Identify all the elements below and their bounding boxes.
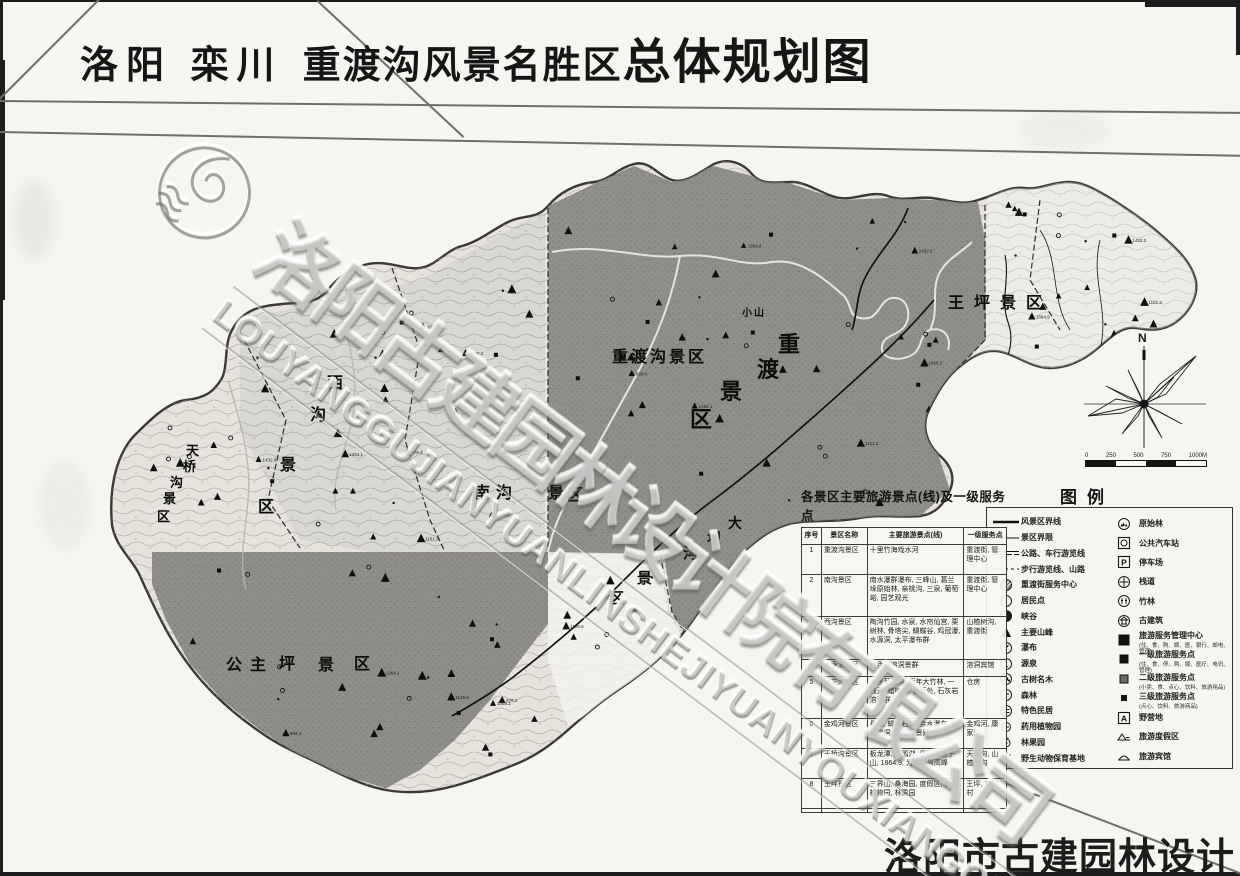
map-label-13: 区 xyxy=(258,498,274,516)
spot-height-label: 1264.1 xyxy=(386,671,400,676)
map-symbol xyxy=(427,676,429,678)
spot-height-label: 976.4 xyxy=(411,450,423,455)
poi-cell: 重渡街, 管理中心 xyxy=(964,544,1007,574)
poi-table-row: 3西沟景区陶沟竹园, 水泉, 水帘仙宫, 栗树林, 骨塔尖, 蝴蝶谷, 鸡冠瀑,… xyxy=(802,617,1007,660)
legend-label: 旅游度假区 xyxy=(1139,731,1179,742)
poi-cell: 王坪景区 xyxy=(821,778,867,808)
legend-label: 栈道 xyxy=(1139,576,1155,587)
scale-tick: 500 xyxy=(1133,453,1143,459)
map-symbol xyxy=(950,389,957,396)
map-symbol xyxy=(904,221,906,223)
scale-tick: 0 xyxy=(1085,453,1088,459)
title-plan-type: 总体规划图 xyxy=(623,36,873,89)
map-symbol xyxy=(277,698,279,700)
map-label-9: 区 xyxy=(567,486,583,504)
map-label-24: 大 xyxy=(728,515,742,531)
spot-height-label: 1432.0 xyxy=(1133,238,1147,243)
map-symbol xyxy=(438,596,440,598)
poi-cell: 南沟景区 xyxy=(821,574,867,617)
svg-text:A: A xyxy=(1121,713,1127,723)
poi-cell: 天桥沟景区 xyxy=(821,749,867,779)
map-label-8: 景 xyxy=(548,484,564,502)
map-symbol xyxy=(353,338,357,342)
map-symbol xyxy=(283,756,290,763)
legend-item-right-4: 竹林 xyxy=(1109,592,1229,611)
legend-label: 公路、车行游览线 xyxy=(1021,548,1085,559)
spot-height-label: 1864.9 xyxy=(427,324,441,329)
map-symbol xyxy=(458,372,460,374)
spot-height-label: 1151.3 xyxy=(865,441,879,446)
poi-cell: 7 xyxy=(802,749,822,779)
map-label-7: 南沟 xyxy=(474,483,518,502)
map-symbol xyxy=(374,356,376,358)
scale-tick: 1000M xyxy=(1189,453,1207,459)
legend-item-right-11: 旅游度假区 xyxy=(1109,727,1229,746)
map-symbol xyxy=(505,382,509,386)
poi-cell: 南水瀑群瀑布, 三峰山, 葛兰垛原始林, 亲桃沟, 三泉, 葡萄峪, 园艺观光 xyxy=(867,574,964,617)
map-symbol xyxy=(916,383,920,387)
map-label-19: 公 xyxy=(226,656,242,674)
spot-height-label: 1120.6 xyxy=(570,624,584,629)
poi-cell: 天桥沟, 山楂树沟 xyxy=(964,749,1007,779)
legend-column-right: 原始林公共汽车站P停车场栈道竹林古建筑旅游服务管理中心(住、食、购、娱、医、银行… xyxy=(1109,514,1229,766)
poi-cell: 仓房 xyxy=(964,676,1007,719)
poi-col-header: 序号 xyxy=(802,528,822,545)
hut-icon xyxy=(1109,730,1139,743)
legend-label: 一级旅游服务点 xyxy=(1139,650,1195,659)
poi-cell: 山楂树沟, 重渡街 xyxy=(964,617,1007,660)
legend-label: 野生动物保育基地 xyxy=(1021,753,1085,764)
legend-box: 风景区界线景区界限公路、车行游览线步行游览线、山路重渡街服务中心居民点峡谷主要山… xyxy=(986,507,1233,769)
legend-item-right-10: A野营地 xyxy=(1109,708,1229,727)
map-symbol xyxy=(1014,254,1016,256)
scan-edge-top xyxy=(0,0,1240,2)
map-symbol xyxy=(157,321,166,330)
map-label-3: 重 xyxy=(778,332,800,357)
spot-height-label: 1432.0 xyxy=(263,457,277,462)
poi-col-header: 主要旅游景点(线) xyxy=(867,528,964,545)
map-symbol xyxy=(488,752,492,756)
poi-cell: 板龙潭, 天鹅湖, 倒回沟猴子山, 1864.9, 为海拔最高峰 xyxy=(867,749,964,779)
map-label-1: 王坪景区 xyxy=(948,294,1052,312)
map-label-16: 沟 xyxy=(170,475,183,490)
poi-cell: 金鸡河景区 xyxy=(821,719,867,749)
circle-plus-icon xyxy=(1109,575,1139,589)
map-label-17: 景 xyxy=(163,491,176,506)
square-A-icon: A xyxy=(1109,711,1139,725)
legend-label: 风景区界线 xyxy=(1021,516,1061,527)
poi-cell: 重渡街, 管理中心 xyxy=(964,574,1007,617)
map-title: 洛阳 栾川重渡沟风景名胜区总体规划图 xyxy=(80,22,873,92)
map-symbol xyxy=(267,467,269,469)
spot-height-label: 1151.3 xyxy=(425,536,439,541)
hut2-icon xyxy=(1109,750,1139,763)
map-label-5: 景 xyxy=(720,379,742,404)
poi-cell xyxy=(867,808,964,812)
poi-cell: 菊花沟景区 xyxy=(821,676,867,719)
svg-text:P: P xyxy=(1121,558,1127,568)
legend-label: 景区界限 xyxy=(1021,532,1053,543)
legend-label: 居民点 xyxy=(1021,595,1045,606)
legend-label: 主要山峰 xyxy=(1021,627,1053,638)
map-symbol xyxy=(400,321,404,325)
map-symbol xyxy=(576,376,580,380)
map-label-0: 重渡沟景区 xyxy=(612,347,707,366)
legend-label-with-note: 三级旅游服务点(点心、饮料、旅游商品) xyxy=(1139,686,1198,710)
map-symbol xyxy=(424,343,428,347)
map-symbol xyxy=(155,363,157,365)
title-area-name: 重渡沟风景名胜区 xyxy=(303,45,623,87)
poi-table-row: 6金鸡河景区悬崖, 蝴蝶石壁, 金水瀑布, 鸡冠溶洞, 原始林景观金鸡河, 康家… xyxy=(802,719,1007,749)
square-circle-icon xyxy=(1109,536,1139,550)
compass-north-label: N xyxy=(1138,331,1147,345)
map-symbol xyxy=(706,338,708,340)
map-label-6: 区 xyxy=(690,407,712,432)
poi-table-row: 7天桥沟景区板龙潭, 天鹅湖, 倒回沟猴子山, 1864.9, 为海拔最高峰天桥… xyxy=(802,749,1007,779)
map-symbol xyxy=(147,390,155,398)
map-symbol xyxy=(698,296,700,298)
legend-label: 特色民居 xyxy=(1021,705,1053,716)
poi-cell: 陶沟竹园, 水泉, 水帘仙宫, 栗树林, 骨塔尖, 蝴蝶谷, 鸡冠瀑, 水源洞,… xyxy=(867,617,964,660)
poi-cell: 1 xyxy=(802,544,822,574)
poi-col-header: 一级服务点 xyxy=(964,528,1007,545)
poi-table-row: 4水莲洞景区特色岩溶洞景群溶洞宾馆 xyxy=(802,659,1007,676)
map-label-12: 景 xyxy=(280,456,296,474)
legend-label: 重渡街服务中心 xyxy=(1021,579,1077,590)
spot-height-label: 893.4 xyxy=(636,371,648,376)
map-label-27: 景 xyxy=(637,569,652,587)
map-symbol xyxy=(646,320,650,324)
legend-title: 图例 xyxy=(1060,483,1114,508)
poi-table-section: 各景区主要旅游景点(线)及一级服务点 序号景区名称主要旅游景点(线)一级服务点1… xyxy=(801,486,1011,813)
title-cities: 洛阳 栾川 xyxy=(80,45,283,87)
map-label-11: 沟 xyxy=(310,405,326,424)
legend-label: 野营地 xyxy=(1139,712,1163,723)
poi-cell xyxy=(821,808,867,812)
scale-tick: 250 xyxy=(1106,453,1116,459)
map-symbol xyxy=(490,637,494,641)
map-label-10: 西 xyxy=(327,374,343,392)
poi-cell: 8 xyxy=(802,778,822,808)
poi-cell: 重渡沟景区 xyxy=(821,544,867,574)
scale-bar-segments xyxy=(1085,460,1207,467)
scan-blotch xyxy=(1020,110,1110,150)
scale-seg xyxy=(1086,461,1116,466)
poi-cell: 水莲洞景区 xyxy=(821,659,867,676)
legend-label: 竹林 xyxy=(1139,596,1155,607)
legend-label: 公共汽车站 xyxy=(1139,538,1179,549)
poi-cell: 金鸡河, 康家沟 xyxy=(964,719,1007,749)
poi-cell: 三界山, 桑海园, 度假区, 药用植物园, 林果园 xyxy=(867,778,964,808)
legend-item-right-1: 公共汽车站 xyxy=(1109,533,1229,552)
legend-label: 林果园 xyxy=(1021,737,1045,748)
scan-mark-top-right xyxy=(1145,0,1240,7)
poi-cell xyxy=(964,808,1007,812)
poi-table-row: 2南沟景区南水瀑群瀑布, 三峰山, 葛兰垛原始林, 亲桃沟, 三泉, 葡萄峪, … xyxy=(802,574,1007,617)
poi-cell: 3 xyxy=(802,617,822,660)
spot-height-label: 1088.2 xyxy=(470,351,484,356)
spot-height-label: 1088.2 xyxy=(928,361,942,366)
scan-edge-right xyxy=(1236,0,1240,55)
scan-blotch xyxy=(14,180,54,260)
scale-seg xyxy=(1116,461,1146,466)
scale-bar: 02505007501000M xyxy=(1085,453,1207,467)
legend-label: 原始林 xyxy=(1139,518,1163,529)
spot-height-label: 1120.6 xyxy=(455,695,469,700)
spot-height-label: 1151.3 xyxy=(1148,300,1162,305)
map-symbol xyxy=(1104,323,1106,325)
poi-cell: 4 xyxy=(802,659,822,676)
legend-item-right-0: 原始林 xyxy=(1109,514,1229,533)
spot-height-label: 1432.0 xyxy=(919,248,933,253)
legend-label: 二级旅游服务点 xyxy=(1139,673,1195,682)
square-P-icon: P xyxy=(1109,555,1139,569)
legend-label: 旅游宾馆 xyxy=(1139,751,1171,762)
spot-height-label: 893.4 xyxy=(290,731,302,736)
spot-height-label: 1864.9 xyxy=(1036,314,1050,319)
map-symbol xyxy=(457,711,461,715)
map-symbol xyxy=(769,233,773,237)
map-label-28: 区 xyxy=(609,590,624,607)
map-symbol xyxy=(1112,233,1116,237)
map-symbol xyxy=(256,356,258,358)
map-label-22: 景 xyxy=(318,656,334,674)
map-label-18: 区 xyxy=(157,509,170,524)
scale-seg xyxy=(1176,461,1206,466)
map-label-25: 坝 xyxy=(707,530,721,546)
legend-label: 森林 xyxy=(1021,690,1037,701)
scale-tick-labels: 02505007501000M xyxy=(1085,453,1207,459)
poi-cell: 溶洞宾馆 xyxy=(964,659,1007,676)
map-symbol xyxy=(1035,345,1039,349)
map-symbol xyxy=(161,275,168,282)
legend-label: 药用植物园 xyxy=(1021,721,1061,732)
poi-cell: 西沟景区 xyxy=(821,617,867,660)
legend-label: 瀑布 xyxy=(1021,642,1037,653)
map-symbol xyxy=(270,479,274,483)
poi-table-title: 各景区主要旅游景点(线)及一级服务点 xyxy=(801,486,1011,524)
legend-item-right-9: 三级旅游服务点(点心、饮料、旅游商品) xyxy=(1109,689,1229,708)
poi-cell xyxy=(802,808,822,812)
legend-label: 源泉 xyxy=(1021,658,1037,669)
map-label-2: 小山 xyxy=(741,306,766,319)
poi-table-row: 5菊花沟景区十里菊花沟, 百年大竹林, 一线天, 蜡梅寺, 舍饭处, 石灰岩溶洞… xyxy=(802,676,1007,719)
square-half-icon xyxy=(1109,672,1139,686)
compass-rose: N xyxy=(1080,328,1210,456)
poi-col-header: 景区名称 xyxy=(821,528,867,545)
poi-cell: 悬崖, 蝴蝶石壁, 金水瀑布, 鸡冠溶洞, 原始林景观 xyxy=(867,719,964,749)
map-label-26: 沟 xyxy=(683,544,698,562)
map-symbol xyxy=(633,607,637,611)
legend-label: 步行游览线、山路 xyxy=(1021,564,1085,575)
scanned-map-document: 1264.11088.2976.41432.01151.31864.91120.… xyxy=(0,0,1240,876)
map-symbol xyxy=(494,353,498,357)
map-symbol xyxy=(253,751,262,760)
circle-pavilion-icon xyxy=(1109,614,1139,628)
square-small-icon xyxy=(1109,691,1139,705)
poi-cell: 王坪, 度假村 xyxy=(964,778,1007,808)
map-symbol xyxy=(202,294,206,298)
map-label-23: 区 xyxy=(354,655,370,673)
legend-item-right-3: 栈道 xyxy=(1109,572,1229,591)
scale-tick: 750 xyxy=(1161,453,1171,459)
poi-cell: 5 xyxy=(802,676,822,719)
map-label-14: 天 xyxy=(186,443,200,458)
square-filled-icon xyxy=(1109,652,1139,666)
map-label-21: 坪 xyxy=(279,655,295,673)
spot-height-label: 976.4 xyxy=(506,698,518,703)
legend-label: 旅游服务管理中心 xyxy=(1139,631,1203,640)
map-label-20: 主 xyxy=(250,655,266,674)
map-symbol xyxy=(751,331,755,335)
poi-table-row: 1重渡沟景区十里竹海戏水河重渡街, 管理中心 xyxy=(802,544,1007,574)
map-symbol xyxy=(856,247,858,249)
square-filled-large-icon xyxy=(1109,633,1139,647)
circle-trees-icon xyxy=(1109,517,1139,531)
poi-cell: 6 xyxy=(802,719,822,749)
map-symbol xyxy=(788,499,790,501)
poi-cell: 十里竹海戏水河 xyxy=(867,544,964,574)
map-label-4: 渡 xyxy=(757,357,780,382)
map-symbol xyxy=(502,290,504,292)
map-symbol xyxy=(1084,240,1086,242)
map-symbol xyxy=(392,502,394,504)
spot-height-label: 1864.9 xyxy=(748,243,762,248)
legend-label: 峡谷 xyxy=(1021,611,1037,622)
circle-bamboo-icon xyxy=(1109,594,1139,608)
map-symbol xyxy=(495,623,497,625)
scan-blotch xyxy=(40,460,90,550)
legend-label: 古树名木 xyxy=(1021,674,1053,685)
legend-item-right-2: P停车场 xyxy=(1109,553,1229,572)
legend-label: 三级旅游服务点 xyxy=(1139,692,1195,701)
poi-table-row xyxy=(802,808,1007,812)
map-symbol xyxy=(217,569,221,573)
map-symbol xyxy=(927,343,931,347)
scale-seg xyxy=(1146,461,1176,466)
poi-table: 序号景区名称主要旅游景点(线)一级服务点1重渡沟景区十里竹海戏水河重渡街, 管理… xyxy=(801,527,1007,813)
map-symbol xyxy=(1023,212,1027,216)
map-label-15: 桥 xyxy=(183,459,197,474)
legend-label: 停车场 xyxy=(1139,557,1163,568)
map-symbol xyxy=(160,336,164,340)
poi-cell: 十里菊花沟, 百年大竹林, 一线天, 蜡梅寺, 舍饭处, 石灰岩溶洞群 xyxy=(867,676,964,719)
map-symbol xyxy=(699,472,703,476)
spot-height-label: 1120.6 xyxy=(496,513,510,518)
poi-cell: 2 xyxy=(802,574,822,617)
spot-height-label: 1264.1 xyxy=(349,452,363,457)
design-institute-footer: 洛阳市古建园林设计研究院 xyxy=(884,826,1240,876)
poi-table-row: 8王坪景区三界山, 桑海园, 度假区, 药用植物园, 林果园王坪, 度假村 xyxy=(802,778,1007,808)
poi-cell: 特色岩溶洞景群 xyxy=(867,659,964,676)
map-symbol xyxy=(173,315,175,317)
legend-item-right-12: 旅游宾馆 xyxy=(1109,747,1229,766)
